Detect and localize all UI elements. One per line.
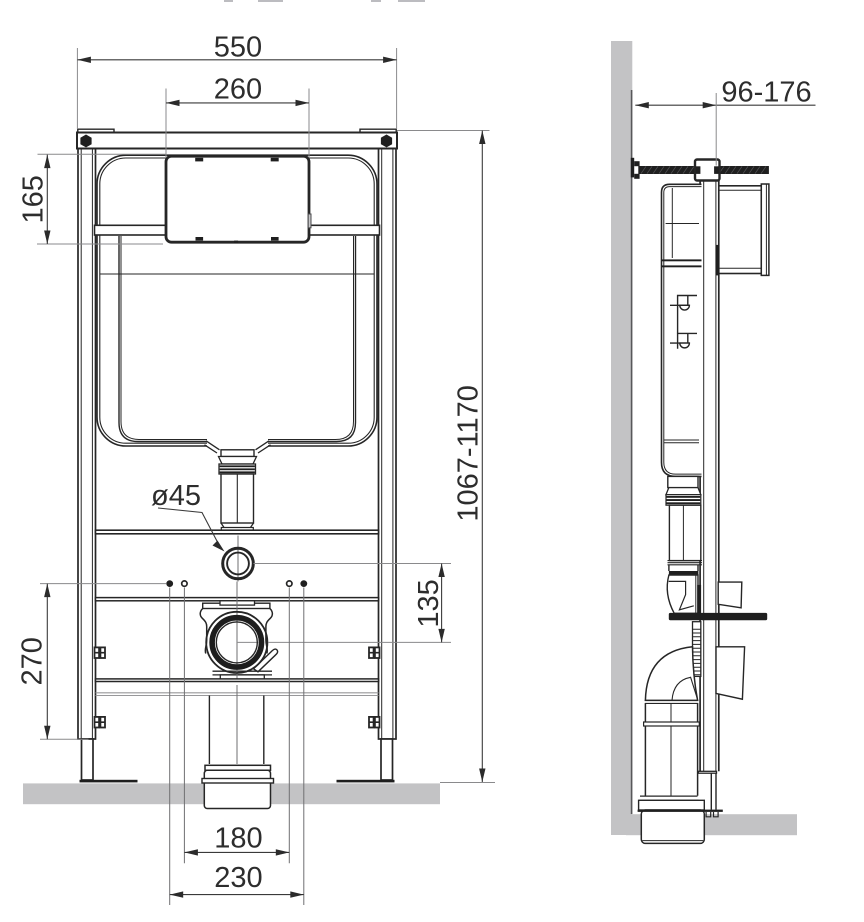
svg-text:ø45: ø45 xyxy=(151,480,201,512)
svg-text:135: 135 xyxy=(413,579,445,627)
svg-text:270: 270 xyxy=(17,637,49,685)
svg-text:1067-1170: 1067-1170 xyxy=(453,385,485,522)
svg-text:230: 230 xyxy=(214,862,262,894)
svg-text:96-176: 96-176 xyxy=(721,77,811,109)
svg-text:165: 165 xyxy=(18,175,50,223)
svg-text:260: 260 xyxy=(214,74,262,106)
svg-text:180: 180 xyxy=(214,823,262,855)
svg-text:550: 550 xyxy=(214,32,262,64)
